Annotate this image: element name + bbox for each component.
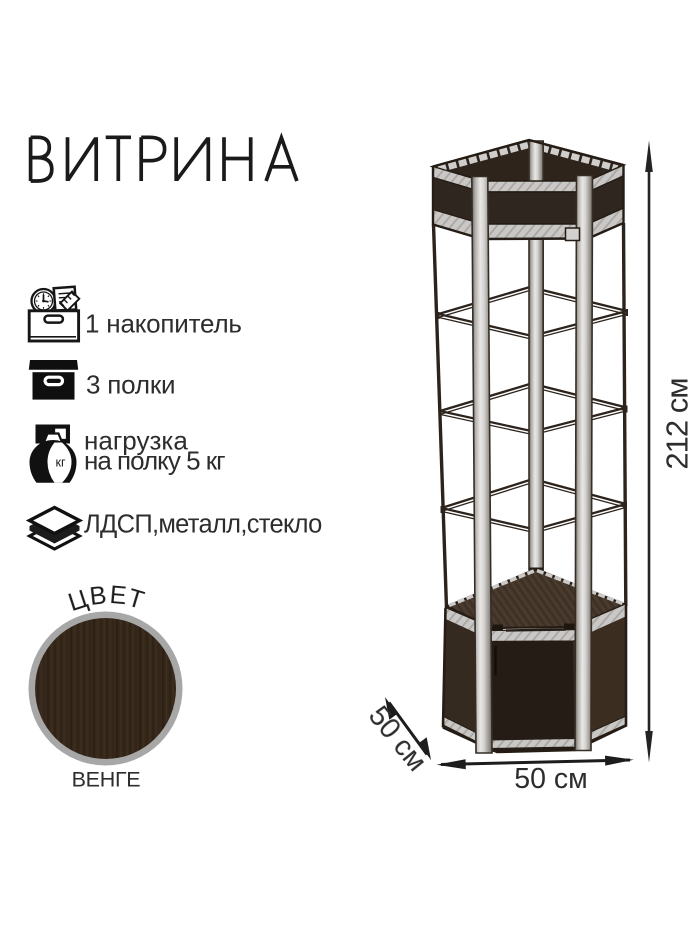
svg-text:на полку 5 кг: на полку 5 кг xyxy=(84,446,225,476)
svg-text:ЛДСП,металл,стекло: ЛДСП,металл,стекло xyxy=(84,511,322,539)
svg-text:3 полки: 3 полки xyxy=(86,370,175,400)
svg-text:50 см: 50 см xyxy=(514,763,587,795)
svg-text:212 см: 212 см xyxy=(660,378,695,469)
svg-text:ВЕНГЕ: ВЕНГЕ xyxy=(72,768,141,792)
svg-text:кг: кг xyxy=(56,456,66,470)
svg-text:1 накопитель: 1 накопитель xyxy=(85,309,242,339)
svg-text:В: В xyxy=(88,581,108,611)
